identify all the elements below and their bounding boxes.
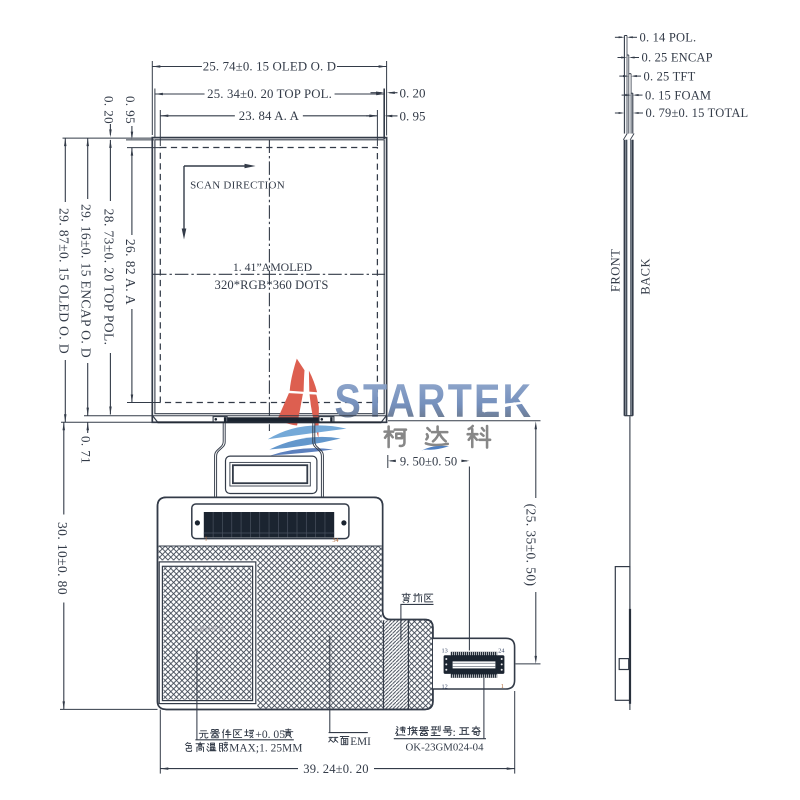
- svg-text:29. 16±0. 15 ENCAP O. D: 29. 16±0. 15 ENCAP O. D: [79, 204, 94, 358]
- svg-text:25. 74±0. 15 OLED O. D: 25. 74±0. 15 OLED O. D: [203, 60, 336, 74]
- svg-text:26. 82 A. A: 26. 82 A. A: [123, 239, 138, 305]
- svg-text:9. 50±0. 50: 9. 50±0. 50: [400, 454, 457, 468]
- svg-text:1: 1: [501, 683, 504, 690]
- svg-text:28. 73±0. 20 TOP POL.: 28. 73±0. 20 TOP POL.: [101, 209, 116, 346]
- svg-text:0. 20: 0. 20: [400, 85, 426, 100]
- svg-text:320*RGB*360 DOTS: 320*RGB*360 DOTS: [215, 278, 329, 292]
- svg-text:EMI: EMI: [350, 736, 371, 748]
- svg-text:0. 25 TFT: 0. 25 TFT: [644, 69, 696, 83]
- svg-text:23. 84 A. A: 23. 84 A. A: [239, 109, 300, 123]
- svg-text:0. 20: 0. 20: [101, 96, 116, 124]
- svg-text:0. 71: 0. 71: [79, 436, 94, 464]
- svg-text:BACK: BACK: [639, 258, 653, 295]
- svg-text:SCAN DIRECTION: SCAN DIRECTION: [190, 180, 285, 192]
- svg-text:0. 79±0. 15 TOTAL: 0. 79±0. 15 TOTAL: [646, 106, 749, 120]
- svg-text::: :: [453, 725, 456, 739]
- svg-text:34: 34: [333, 538, 339, 544]
- svg-text:24: 24: [498, 647, 505, 654]
- svg-text:0. 95: 0. 95: [400, 109, 426, 124]
- svg-text:13: 13: [442, 647, 448, 654]
- svg-text:0. 14 POL.: 0. 14 POL.: [640, 31, 697, 45]
- svg-text:25. 34±0. 20 TOP POL.: 25. 34±0. 20 TOP POL.: [207, 87, 332, 101]
- svg-text:0. 95: 0. 95: [123, 96, 138, 124]
- svg-text:OK-23GM024-04: OK-23GM024-04: [406, 742, 485, 754]
- svg-text:29. 87±0. 15 OLED O. D: 29. 87±0. 15 OLED O. D: [56, 208, 71, 354]
- svg-text:FRONT: FRONT: [608, 249, 622, 292]
- svg-text:(25. 35±0. 50): (25. 35±0. 50): [524, 504, 539, 587]
- svg-text:1: 1: [205, 537, 208, 543]
- svg-text:39. 24±0. 20: 39. 24±0. 20: [303, 762, 368, 776]
- svg-text:1. 41”AMOLED: 1. 41”AMOLED: [233, 260, 313, 274]
- svg-text:0. 25 ENCAP: 0. 25 ENCAP: [642, 51, 713, 65]
- svg-text:30. 10±0. 80: 30. 10±0. 80: [55, 522, 70, 595]
- svg-text:0. 15 FOAM: 0. 15 FOAM: [645, 88, 711, 102]
- svg-text:12: 12: [442, 684, 448, 691]
- svg-text:MAX;1. 25MM: MAX;1. 25MM: [229, 743, 302, 755]
- svg-text:STARTEK: STARTEK: [335, 376, 534, 428]
